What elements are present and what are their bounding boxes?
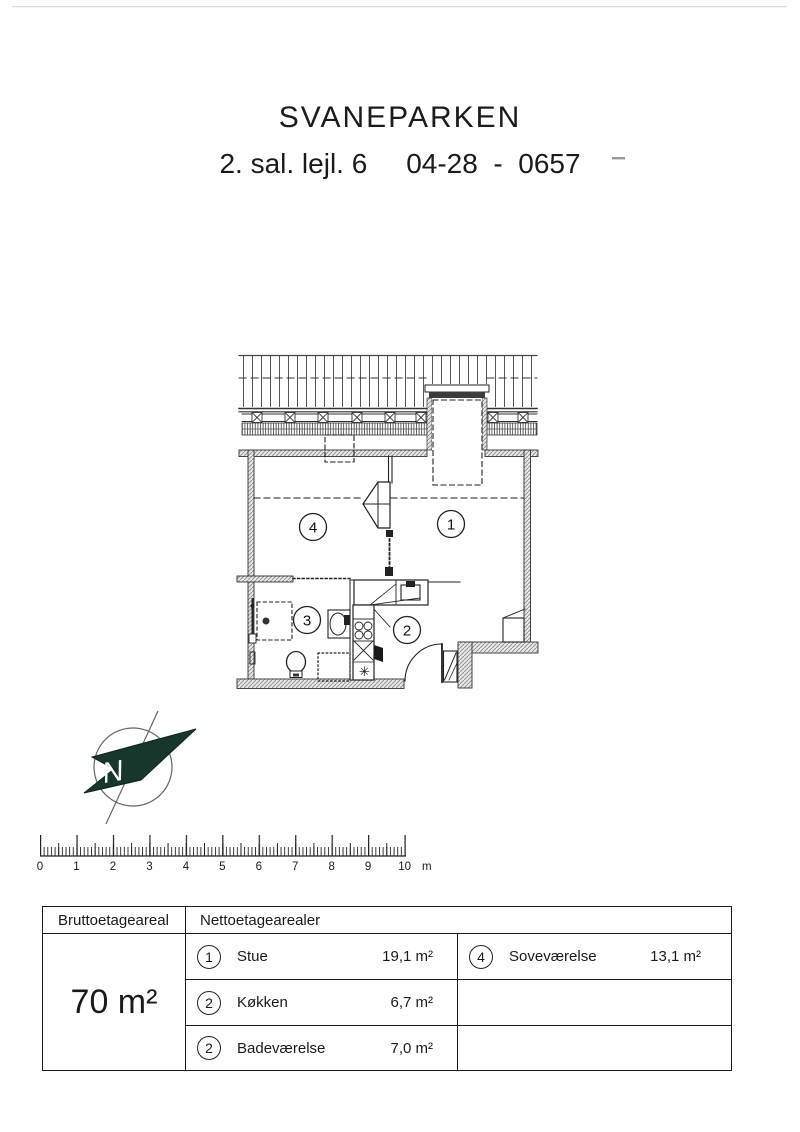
room-number-badge: 2	[197, 991, 221, 1015]
table-row-stue: 1 Stue 19,1 m²	[186, 934, 458, 980]
table-row-koekken: 2 Køkken 6,7 m²	[186, 980, 458, 1026]
svg-text:1: 1	[447, 517, 455, 534]
svg-text:10: 10	[398, 861, 411, 873]
room-area: 6,7 m²	[390, 994, 457, 1011]
room-label-stue: 1	[438, 511, 465, 538]
room-label-bad: 3	[294, 607, 321, 634]
svg-text:9: 9	[365, 861, 371, 873]
svg-text:1: 1	[73, 861, 79, 873]
room-name: Badeværelse	[237, 1040, 325, 1057]
chimney	[363, 482, 390, 528]
svg-text:4: 4	[309, 520, 317, 537]
radiator	[503, 618, 524, 642]
room-number-badge: 1	[197, 945, 221, 969]
room-number-badge: 4	[469, 945, 493, 969]
room-number-badge: 2	[197, 1036, 221, 1060]
scan-artifact-line	[12, 6, 787, 7]
table-row-sovevaerelse: 4 Soveværelse 13,1 m²	[458, 934, 731, 980]
dormer-window	[425, 384, 489, 485]
scale-bar: 0 1 2 3 4 5 6 7 8 9 10 m	[37, 835, 432, 873]
right-wall	[524, 450, 531, 642]
svg-text:7: 7	[292, 861, 298, 873]
bottom-wall	[237, 679, 404, 689]
svg-text:5: 5	[219, 861, 225, 873]
top-wall-left	[239, 450, 427, 457]
bathroom-wall-stub	[237, 576, 293, 582]
north-arrow: N	[84, 711, 196, 824]
page-subtitle: 2. sal. lejl. 6 04-28 - 0657	[0, 148, 800, 180]
svg-text:8: 8	[328, 861, 334, 873]
room-labels: 4 1 3 2	[294, 511, 465, 644]
svg-text:2: 2	[403, 623, 411, 640]
room-name: Soveværelse	[509, 948, 597, 965]
net-area-header: Nettoetagearealer	[186, 907, 731, 934]
shower-area	[257, 602, 292, 640]
room-area: 19,1 m²	[382, 948, 457, 965]
svg-text:2: 2	[110, 861, 116, 873]
scale-unit: m	[422, 861, 432, 873]
svg-text:4: 4	[183, 861, 190, 873]
anchor-plate-band	[242, 413, 537, 436]
room-area: 13,1 m²	[650, 948, 731, 965]
entrance-door-arc	[405, 644, 442, 681]
svg-text:3: 3	[146, 861, 152, 873]
table-row-badevaerelse: 2 Badeværelse 7,0 m²	[186, 1026, 458, 1070]
corridor-wall-vertical	[458, 642, 472, 688]
skylight-dashed	[325, 435, 354, 462]
fridge-icon: ✳	[359, 664, 370, 679]
gross-area-value: 70 m²	[43, 934, 186, 1070]
kitchen-sink-icon	[401, 585, 420, 600]
area-table: Bruttoetageareal Nettoetagearealer 70 m²…	[42, 906, 732, 1071]
kitchen-dark-unit	[374, 645, 383, 662]
room-label-koekken: 2	[394, 617, 421, 644]
room-name: Stue	[237, 948, 268, 965]
svg-text:0: 0	[37, 861, 43, 873]
table-row-empty	[458, 1026, 731, 1070]
toilet-icon	[287, 652, 306, 673]
scale-tick-labels: 0 1 2 3 4 5 6 7 8 9 10 m	[37, 861, 432, 873]
room-name: Køkken	[237, 994, 288, 1011]
floor-plan: ✳	[237, 355, 538, 689]
appliance-dotted-square	[318, 653, 350, 681]
shower-drain-icon	[263, 618, 270, 625]
table-row-empty	[458, 980, 731, 1026]
svg-text:6: 6	[256, 861, 262, 873]
room-area: 7,0 m²	[390, 1040, 457, 1057]
kitchen-faucet-icon	[406, 581, 415, 587]
svg-text:3: 3	[303, 613, 311, 630]
roof-band	[239, 355, 537, 412]
page-title: SVANEPARKEN	[0, 101, 800, 135]
room-label-sovevaerelse: 4	[300, 514, 327, 541]
interior-wall-chimney	[363, 456, 393, 576]
gross-area-header: Bruttoetageareal	[43, 907, 186, 934]
scanned-floorplan-page: { "page": { "title": "SVANEPARKEN", "sub…	[0, 0, 800, 1132]
